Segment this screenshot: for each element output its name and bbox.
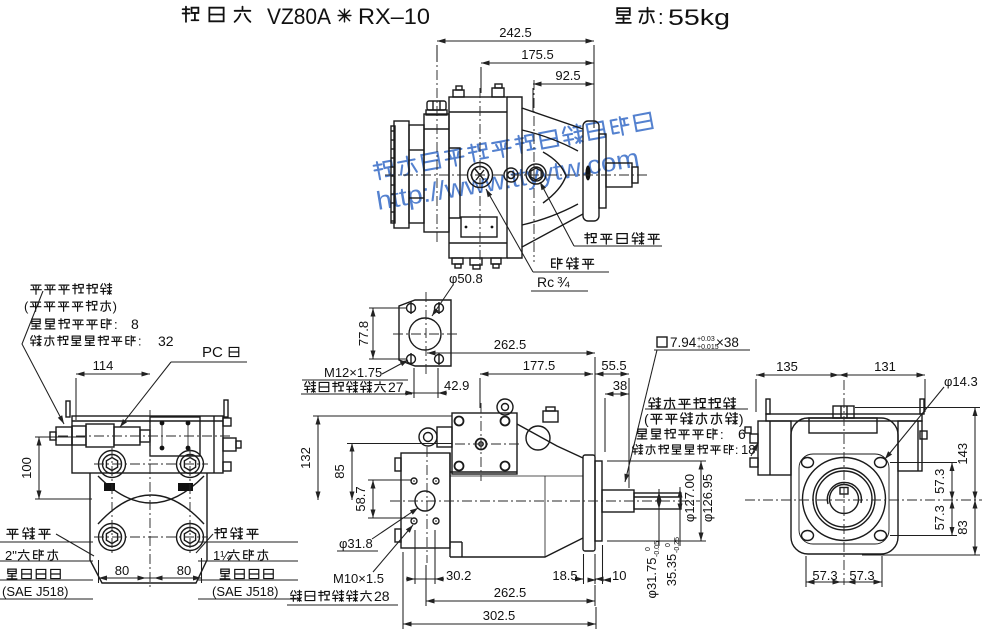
svg-text:42.9: 42.9 — [444, 378, 469, 393]
svg-text:35.35: 35.35 — [664, 554, 679, 587]
svg-text:-0.05: -0.05 — [654, 541, 661, 557]
svg-text::: : — [658, 7, 664, 29]
svg-text:8: 8 — [131, 316, 139, 332]
svg-text::: : — [735, 443, 738, 457]
svg-text:φ126.95: φ126.95 — [700, 474, 715, 522]
svg-text:φ50.8: φ50.8 — [449, 271, 483, 286]
svg-text:77.8: 77.8 — [356, 321, 371, 346]
svg-text:0: 0 — [665, 543, 672, 547]
svg-text:): ) — [739, 411, 744, 427]
svg-text:57.3: 57.3 — [849, 568, 874, 583]
svg-text:57.3: 57.3 — [932, 505, 947, 530]
svg-text:114: 114 — [93, 358, 114, 373]
svg-text::: : — [720, 427, 724, 442]
svg-text:(: ( — [644, 411, 649, 427]
svg-text:φ31.8: φ31.8 — [339, 536, 373, 551]
svg-text:262.5: 262.5 — [494, 337, 527, 352]
svg-text:(SAE J518): (SAE J518) — [212, 584, 278, 599]
svg-text:80: 80 — [177, 563, 191, 578]
svg-text:100: 100 — [19, 457, 34, 479]
svg-text:58.7: 58.7 — [353, 486, 368, 511]
svg-text:(SAE J518): (SAE J518) — [2, 584, 68, 599]
svg-text:18.5: 18.5 — [552, 568, 577, 583]
svg-text:38: 38 — [613, 378, 627, 393]
svg-text:-0.25: -0.25 — [674, 537, 681, 553]
svg-text:55kg: 55kg — [668, 5, 730, 30]
svg-text:27: 27 — [388, 379, 404, 395]
svg-text:IN: IN — [106, 486, 112, 492]
svg-text:φ31.75: φ31.75 — [644, 558, 659, 599]
svg-text:Rc: Rc — [537, 274, 554, 290]
svg-text:(: ( — [24, 299, 29, 314]
svg-text:143: 143 — [955, 443, 970, 465]
svg-text:80: 80 — [115, 563, 129, 578]
svg-text:85: 85 — [332, 464, 347, 478]
svg-text:55.5: 55.5 — [601, 358, 626, 373]
svg-text:131: 131 — [874, 359, 896, 374]
svg-text:177.5: 177.5 — [523, 358, 556, 373]
svg-text:PC: PC — [202, 344, 223, 361]
svg-text:302.5: 302.5 — [483, 608, 516, 623]
svg-text:57.3: 57.3 — [812, 568, 837, 583]
svg-text:28: 28 — [374, 588, 390, 604]
svg-text:10: 10 — [612, 568, 626, 583]
svg-text::: : — [138, 335, 142, 349]
svg-text:φ14.3: φ14.3 — [944, 374, 978, 389]
svg-text:VZ80A: VZ80A — [267, 4, 331, 29]
svg-text::: : — [114, 317, 118, 332]
svg-text:57.3: 57.3 — [932, 469, 947, 494]
svg-text:×38: ×38 — [716, 335, 739, 350]
svg-text:M12×1.75: M12×1.75 — [324, 365, 382, 380]
svg-text:M10×1.5: M10×1.5 — [333, 571, 384, 586]
svg-text:92.5: 92.5 — [555, 68, 580, 83]
svg-text:7.94: 7.94 — [670, 335, 697, 350]
svg-text:30.2: 30.2 — [446, 568, 471, 583]
svg-text:¾: ¾ — [557, 274, 570, 291]
svg-text:135: 135 — [776, 359, 798, 374]
svg-text:RX–10: RX–10 — [358, 4, 430, 29]
svg-text:32: 32 — [158, 333, 174, 349]
svg-text:0: 0 — [645, 547, 652, 551]
svg-text:+0.03: +0.03 — [697, 336, 715, 343]
svg-text:83: 83 — [955, 520, 970, 534]
svg-text:132: 132 — [298, 447, 313, 469]
svg-text:): ) — [113, 299, 117, 314]
svg-text:262.5: 262.5 — [494, 585, 527, 600]
svg-text:242.5: 242.5 — [499, 25, 532, 40]
svg-text:175.5: 175.5 — [521, 47, 554, 62]
svg-text:φ127.00: φ127.00 — [682, 474, 697, 522]
